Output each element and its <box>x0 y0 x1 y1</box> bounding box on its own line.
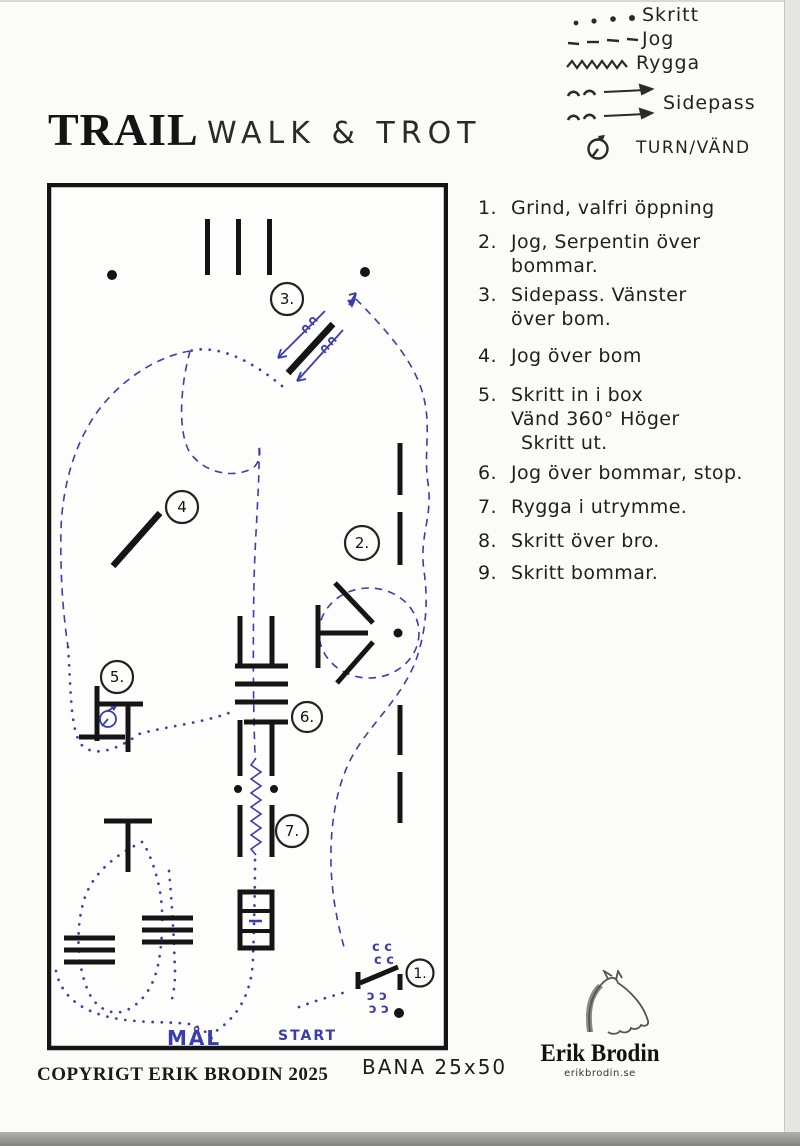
horse-head-icon <box>530 970 670 1036</box>
jog-dashes-icon <box>566 34 640 48</box>
sidepass-icon <box>564 82 656 128</box>
course-map: ∩∩ ∩∩ 3. 2. 4 <box>47 183 448 1051</box>
start-label: START <box>278 1028 337 1044</box>
legend-turn-label: TURN/VÄND <box>636 138 751 158</box>
legend-rygga-label: Rygga <box>636 52 700 74</box>
mal-label: MÅL <box>167 1026 221 1050</box>
rygga-zigzag-icon <box>565 57 633 73</box>
obstacle-4-number: 4 <box>177 498 187 516</box>
brand-logo: Erik Brodin erikbrodin.se <box>530 970 670 1079</box>
svg-text:c c: c c <box>374 953 394 968</box>
legend-jog-label: Jog <box>642 28 674 50</box>
brand-name: Erik Brodin <box>536 1040 665 1068</box>
obstacle-7-number: 7. <box>285 822 299 840</box>
list-item: 6. Jog över bommar, stop. <box>478 461 743 485</box>
page-subtitle: WALK & TROT <box>207 116 482 151</box>
page-title: TRAIL <box>48 103 199 156</box>
arena-size-label: BANA 25x50 <box>362 1055 507 1079</box>
list-item: 1. Grind, valfri öppning <box>478 196 715 220</box>
copyright-text: COPYRIGT ERIK BRODIN 2025 <box>37 1064 328 1086</box>
obstacle-5-number: 5. <box>110 668 124 686</box>
obstacle-1-number: 1. <box>413 966 426 982</box>
list-item: 5. Skritt in i box Vänd 360° Höger Skrit… <box>478 383 680 455</box>
scan-edge-right <box>784 0 800 1146</box>
obstacle-6-number: 6. <box>300 708 314 726</box>
legend-skritt-label: Skritt <box>642 4 699 26</box>
list-item: 9. Skritt bommar. <box>478 561 658 585</box>
list-item: 8. Skritt över bro. <box>478 529 660 553</box>
svg-text:ɔ ɔ: ɔ ɔ <box>369 1002 389 1017</box>
turn-icon <box>584 134 612 162</box>
walk-dots-icon <box>568 12 640 28</box>
brand-site: erikbrodin.se <box>530 1068 670 1079</box>
legend-sidepass-label: Sidepass <box>663 92 756 114</box>
list-item: 2. Jog, Serpentin över bommar. <box>478 230 701 278</box>
list-item: 3. Sidepass. Vänster över bom. <box>478 283 687 331</box>
obstacle-2-number: 2. <box>355 534 369 552</box>
list-item: 4. Jog över bom <box>478 344 642 368</box>
scanned-trail-course-sheet: TRAIL WALK & TROT Skritt Jog Rygga <box>0 0 800 1146</box>
scan-edge-top <box>0 0 800 2</box>
arena-border <box>49 185 446 1048</box>
obstacle-3-number: 3. <box>280 290 294 308</box>
scan-edge-bottom <box>0 1132 800 1146</box>
list-item: 7. Rygga i utrymme. <box>478 495 687 519</box>
